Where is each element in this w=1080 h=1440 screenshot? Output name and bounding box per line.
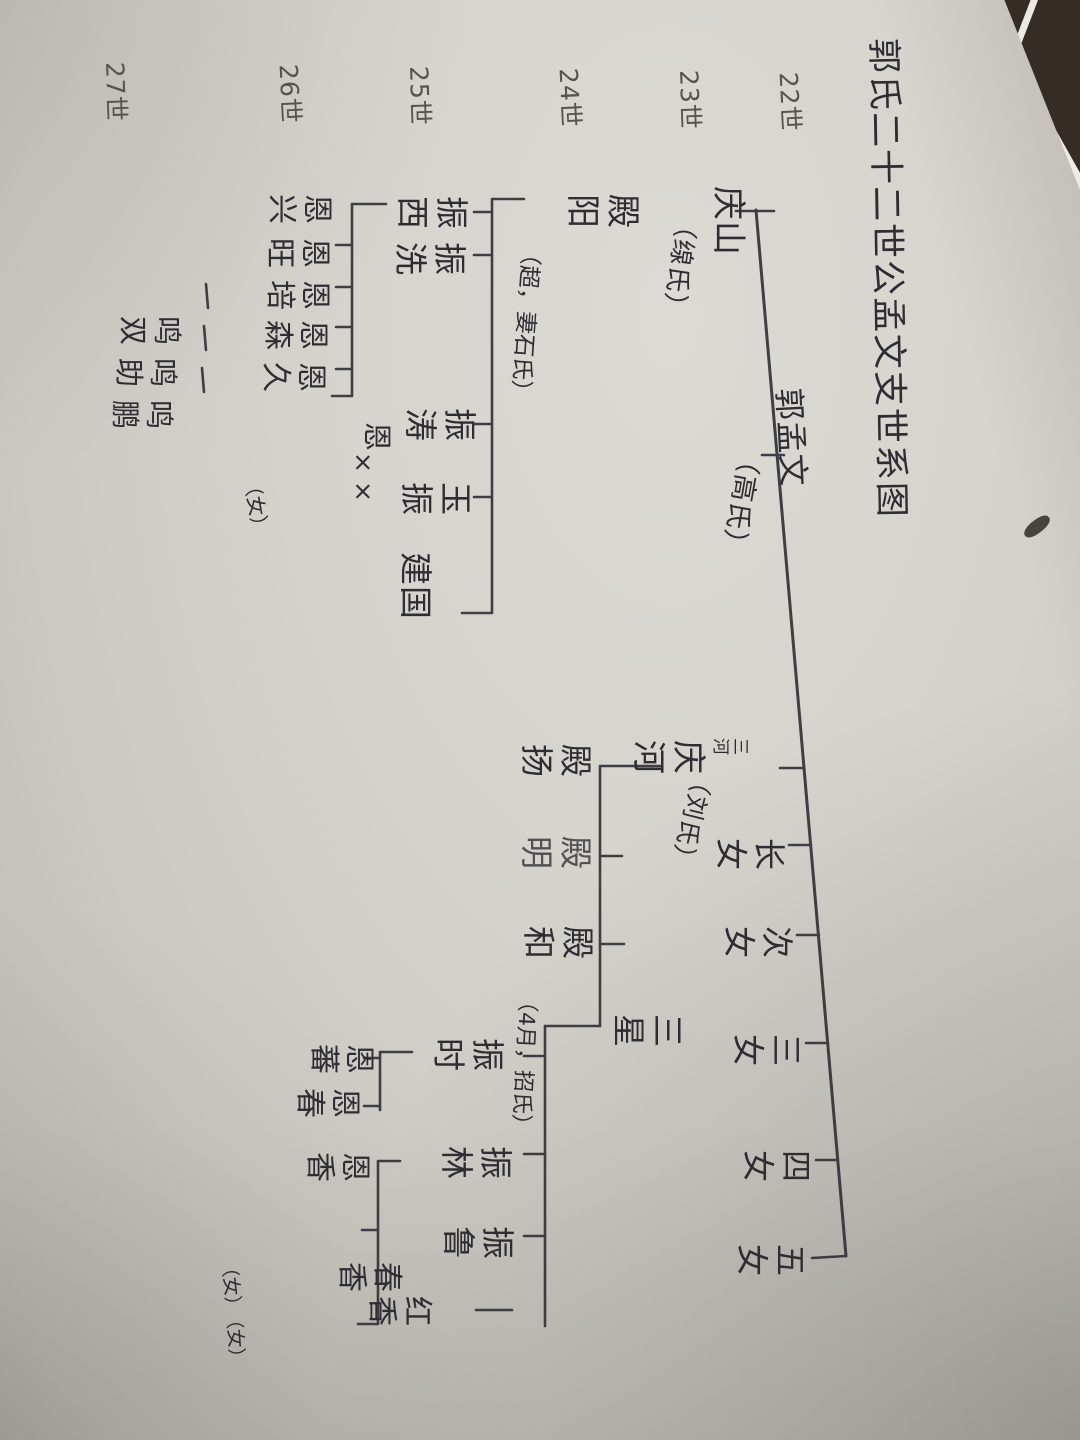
node-enxing: 恩兴 — [263, 194, 334, 228]
node-jianguo: 建国 — [395, 552, 435, 620]
node-enpei: 恩培 — [261, 280, 332, 314]
node-daughter-1: 长女 — [712, 838, 788, 874]
generation-label-22: 22世 — [772, 71, 805, 132]
node-zhenshi: 振时 — [428, 1038, 506, 1076]
node-guomengwen: 郭孟文 — [769, 387, 813, 488]
node-daughter-2: 次女 — [720, 926, 796, 962]
node-enxiang: 恩香 — [301, 1152, 372, 1186]
node-zhenlin: 振林 — [436, 1146, 514, 1184]
node-dianming: 殿明 — [516, 836, 594, 874]
node-chunxiang: 春香 — [333, 1262, 404, 1296]
node-enwang: 恩旺 — [261, 238, 332, 272]
sibling-line-qinghe-children — [600, 766, 660, 1026]
node-daughter-3: 三女 — [729, 1034, 805, 1070]
generation-label-25: 25世 — [403, 65, 435, 126]
node-ensen: 恩森 — [259, 320, 330, 354]
female-mark-hongxiang: （女） — [221, 1309, 248, 1367]
node-entao-en: 恩 — [360, 422, 394, 455]
node-daughter-4: 四女 — [739, 1150, 815, 1186]
node-hongxiang: 红香 — [363, 1296, 434, 1330]
node-dianyang2: 殿扬 — [516, 744, 594, 782]
generation-label-27: 27世 — [99, 61, 131, 122]
tree-lines-svg — [0, 0, 1080, 1440]
node-zhentao: 振涛 — [400, 408, 478, 446]
node-sanxing: 三星 — [608, 1014, 686, 1052]
node-entao-xx: ×× — [348, 452, 378, 510]
generation-label-24: 24世 — [552, 67, 585, 128]
node-mingshuang: 鸣双 — [116, 316, 184, 349]
node-enchun: 恩春 — [291, 1088, 362, 1122]
sibling-line-zhenxi-children — [332, 204, 386, 396]
node-dianyang: 殿阳 — [562, 194, 642, 233]
node-dianhe: 殿和 — [518, 926, 596, 964]
node-qingshan: 庆山 — [707, 186, 748, 256]
sibling-line-gen23 — [756, 210, 846, 1256]
node-zhenlu: 振鲁 — [438, 1226, 516, 1264]
alias-annotation-sanhe: 三河 — [710, 738, 750, 757]
family-tree-sheet: 郭氏二十二世公孟文支世系图 22世 23世 24世 25世 26世 27世 郭孟… — [0, 0, 1080, 1440]
node-daughter-5: 五女 — [733, 1244, 809, 1280]
node-mingpeng: 鸣鹏 — [108, 400, 176, 433]
node-zhenxi: 振西 — [392, 196, 470, 234]
node-yuzhen: 玉振 — [396, 482, 474, 520]
generation-label-23: 23世 — [673, 69, 705, 130]
node-mingzhu: 鸣助 — [112, 358, 180, 391]
chart-title: 郭氏二十二世公孟文支世系图 — [862, 38, 912, 520]
generation-label-26: 26世 — [272, 63, 305, 124]
node-enfan: 恩蕃 — [305, 1044, 376, 1078]
sibling-line-zhenshi-children — [380, 1052, 412, 1110]
node-zhenxian: 振洗 — [390, 242, 468, 280]
node-enjiu: 恩久 — [257, 362, 328, 396]
